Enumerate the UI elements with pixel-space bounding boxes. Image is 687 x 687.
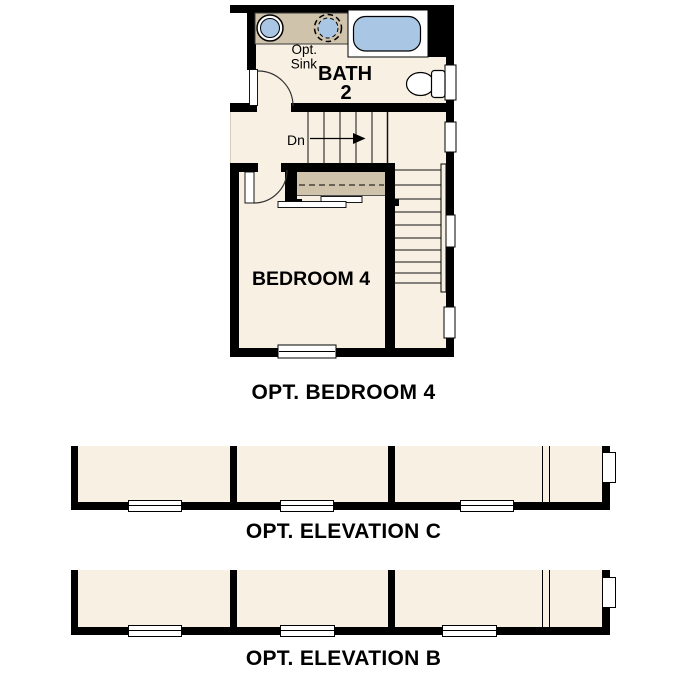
wall-segment xyxy=(230,570,237,627)
toilet-fixture xyxy=(407,71,446,98)
wall-thin-double-line xyxy=(542,446,550,503)
wall-segment xyxy=(385,199,399,206)
wall-segment xyxy=(291,103,454,112)
stair-down-label: Dn xyxy=(287,132,305,148)
wall-segment xyxy=(230,446,237,503)
vanity-counter xyxy=(255,13,348,44)
wall-segment xyxy=(388,446,395,503)
bath-doorway-floor xyxy=(256,103,292,112)
bathtub-fixture xyxy=(348,10,428,57)
wall-segment xyxy=(230,348,454,357)
stair-landing xyxy=(297,172,385,196)
landing-fill xyxy=(297,172,385,196)
door-leaf xyxy=(245,172,254,203)
floor-plan-caption: OPT. BEDROOM 4 xyxy=(0,381,687,405)
wall-segment xyxy=(385,163,395,357)
elevation-body xyxy=(77,570,602,628)
stair-stringer xyxy=(441,164,446,292)
wall-segment xyxy=(71,446,78,510)
wall-thin-double-line xyxy=(542,570,550,627)
elevation-b-caption: OPT. ELEVATION B xyxy=(0,647,687,671)
window xyxy=(445,122,456,152)
opt-sink-label-line1: Opt. xyxy=(291,42,317,57)
door-leaf xyxy=(250,70,258,106)
bath-label-line2: 2 xyxy=(340,82,351,104)
window xyxy=(460,500,514,512)
wall-segment xyxy=(388,570,395,627)
floor-plan: Opt. Sink BATH 2 Dn BEDROOM 4 xyxy=(0,0,687,420)
window xyxy=(445,65,456,100)
wall-segment xyxy=(230,163,258,172)
window-side xyxy=(602,452,616,483)
opt-sink-label-line2: Sink xyxy=(291,57,318,72)
wall-segment xyxy=(71,570,78,635)
elevation-c-caption: OPT. ELEVATION C xyxy=(0,520,687,544)
window-side xyxy=(602,577,616,608)
architectural-drawing-page: Opt. Sink BATH 2 Dn BEDROOM 4 OPT. BEDRO… xyxy=(0,0,687,687)
window xyxy=(128,500,182,512)
wall-segment xyxy=(230,172,239,357)
window xyxy=(128,625,182,637)
stairwell-floor xyxy=(388,112,447,350)
window xyxy=(280,625,335,637)
wall-segment xyxy=(281,163,395,172)
window xyxy=(444,307,455,338)
elevation-body xyxy=(77,446,602,503)
window xyxy=(280,500,334,512)
window xyxy=(442,625,497,637)
bedroom-label: BEDROOM 4 xyxy=(252,268,370,290)
